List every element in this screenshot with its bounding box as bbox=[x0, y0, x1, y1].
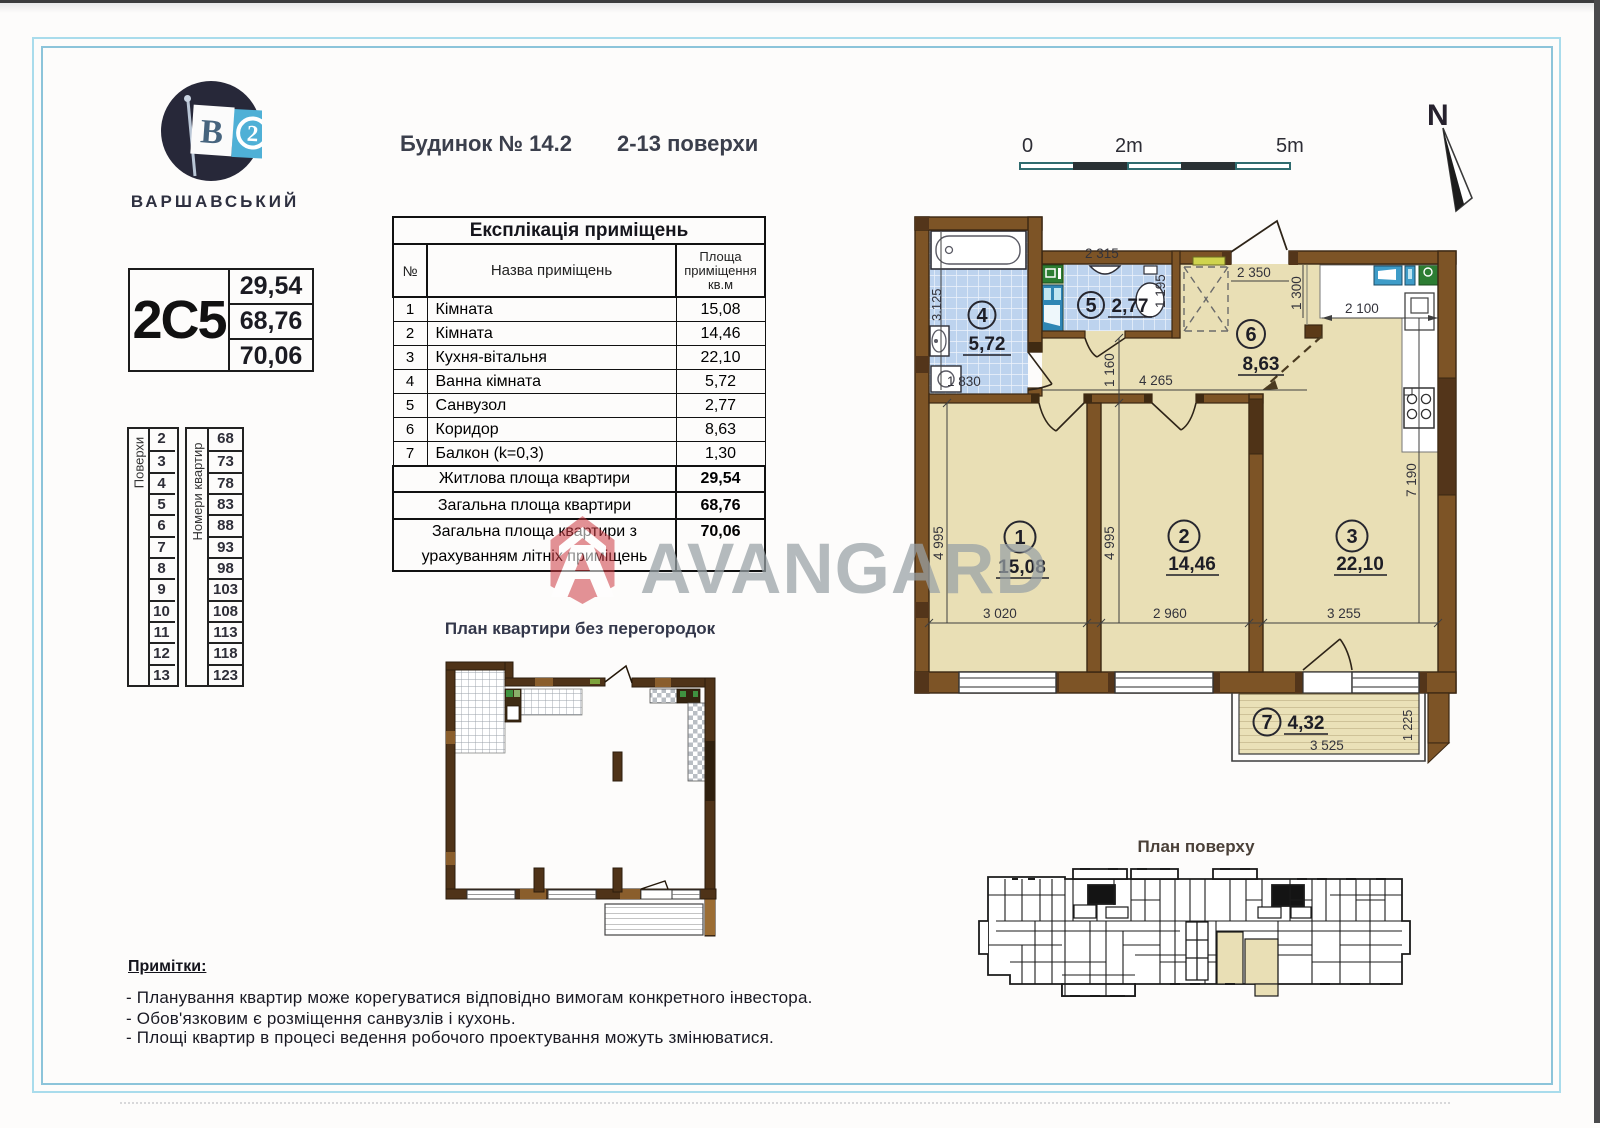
svg-text:6: 6 bbox=[1245, 324, 1256, 346]
svg-text:3 525: 3 525 bbox=[1310, 738, 1344, 753]
svg-text:8,63: 8,63 bbox=[1243, 354, 1280, 375]
svg-text:5,72: 5,72 bbox=[969, 334, 1006, 355]
svg-text:5m: 5m bbox=[1276, 135, 1304, 157]
svg-text:3: 3 bbox=[1346, 526, 1357, 548]
svg-text:0: 0 bbox=[1022, 135, 1033, 157]
svg-text:15,08: 15,08 bbox=[998, 557, 1046, 578]
svg-text:4: 4 bbox=[976, 305, 988, 327]
svg-text:3 255: 3 255 bbox=[1327, 606, 1361, 621]
svg-text:2 100: 2 100 bbox=[1345, 301, 1379, 316]
svg-text:1 300: 1 300 bbox=[1289, 276, 1304, 310]
svg-text:1 160: 1 160 bbox=[1102, 353, 1117, 387]
svg-text:N: N bbox=[1427, 99, 1449, 132]
svg-text:1 830: 1 830 bbox=[947, 374, 981, 389]
svg-text:2,77: 2,77 bbox=[1112, 296, 1149, 317]
svg-text:7: 7 bbox=[1261, 712, 1272, 734]
svg-text:3 020: 3 020 bbox=[983, 606, 1017, 621]
svg-text:2m: 2m bbox=[1115, 135, 1143, 157]
svg-text:22,10: 22,10 bbox=[1336, 554, 1384, 575]
svg-text:5: 5 bbox=[1085, 295, 1096, 317]
svg-text:4 265: 4 265 bbox=[1139, 373, 1173, 388]
svg-text:2 350: 2 350 bbox=[1237, 265, 1271, 280]
svg-text:1 195: 1 195 bbox=[1153, 274, 1168, 308]
svg-text:1: 1 bbox=[1014, 527, 1025, 549]
svg-text:14,46: 14,46 bbox=[1168, 554, 1216, 575]
svg-text:2 315: 2 315 bbox=[1085, 246, 1119, 261]
svg-text:7 190: 7 190 bbox=[1404, 463, 1419, 497]
svg-text:1 225: 1 225 bbox=[1401, 710, 1415, 741]
svg-text:2: 2 bbox=[1178, 526, 1189, 548]
svg-text:4 995: 4 995 bbox=[931, 526, 946, 560]
svg-text:3.125: 3.125 bbox=[929, 288, 944, 321]
svg-text:4 995: 4 995 bbox=[1102, 526, 1117, 560]
svg-text:4,32: 4,32 bbox=[1288, 713, 1325, 734]
svg-text:2 960: 2 960 bbox=[1153, 606, 1187, 621]
